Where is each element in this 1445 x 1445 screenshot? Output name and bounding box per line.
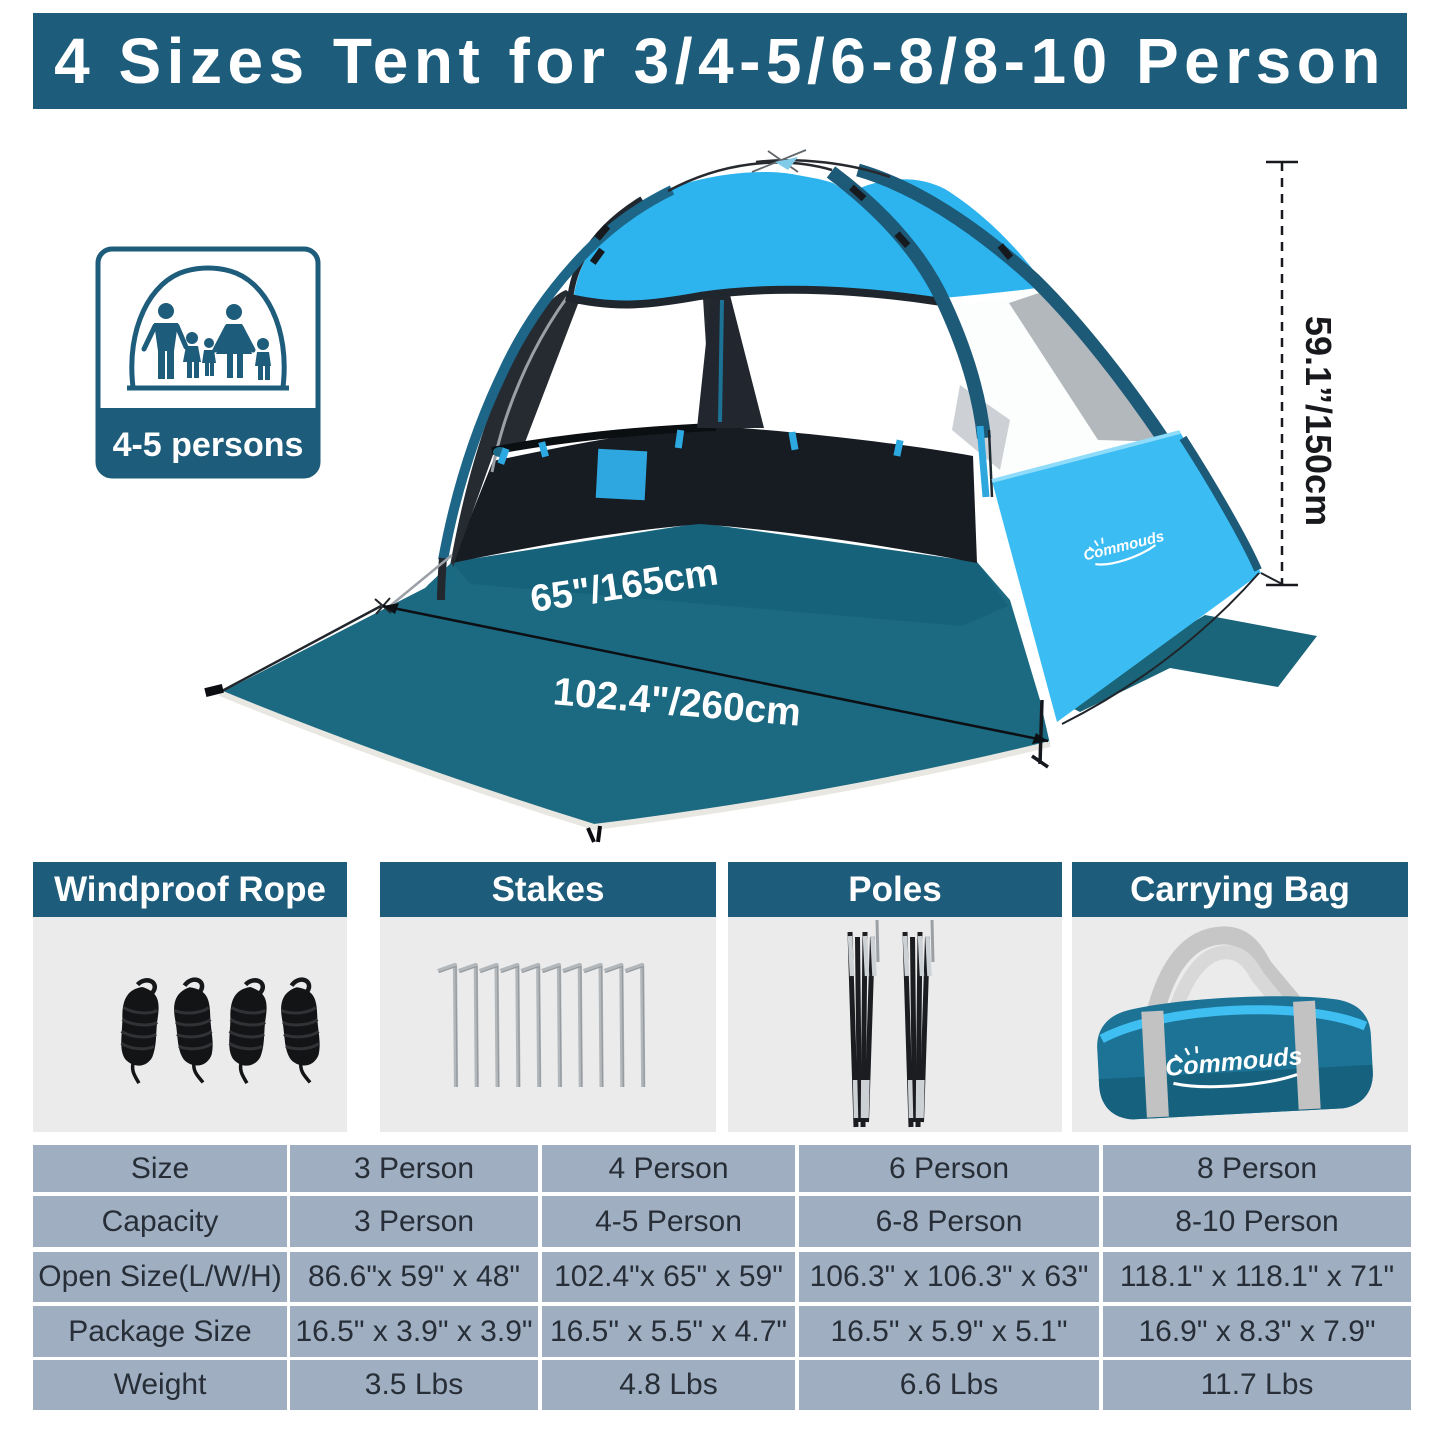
- svg-text:59.1”/150cm: 59.1”/150cm: [1298, 316, 1339, 526]
- svg-text:4-5 persons: 4-5 persons: [113, 426, 304, 464]
